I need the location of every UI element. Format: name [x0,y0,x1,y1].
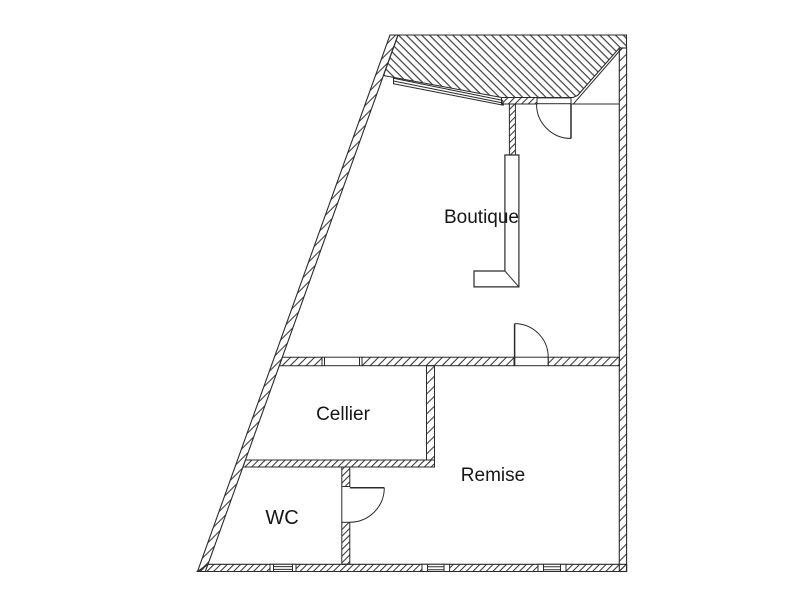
svg-text:Boutique: Boutique [444,207,519,228]
svg-text:WC: WC [265,507,298,529]
svg-text:Remise: Remise [461,465,525,486]
svg-text:Cellier: Cellier [316,404,371,425]
